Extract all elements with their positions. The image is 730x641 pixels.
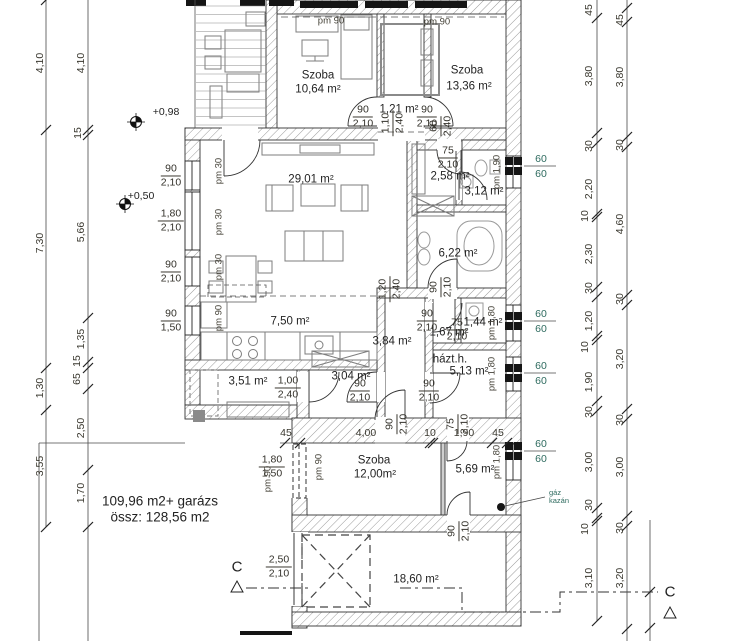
dimension-label: 30 [584, 282, 595, 294]
dimension-label: 10 [580, 523, 591, 535]
summary-area-line1: 109,96 m2+ garázs [102, 494, 218, 509]
dimension-label: 3,55 [35, 456, 46, 476]
dimension-label: 30 [615, 293, 626, 305]
room-label: 13,36 m² [446, 81, 491, 93]
opening-size-label: 1,802,10 [158, 208, 184, 233]
gas-boiler-label: gáz kazán [549, 489, 569, 506]
opening-size-label: 901,50 [161, 308, 181, 333]
opening-size-label: 1,202,40 [377, 276, 402, 302]
dimension-label: 3,80 [584, 66, 595, 86]
dimension-label: 1,30 [35, 378, 46, 398]
parapet-height-label: pm 1,80 [487, 357, 497, 391]
dimension-label: 3,20 [615, 349, 626, 369]
dimension-label: 65 [72, 373, 83, 385]
opening-size-label: 1,002,40 [275, 375, 301, 400]
dimension-label: 10 [580, 210, 591, 222]
dimension-label: 1,20 [584, 311, 595, 331]
parapet-height-label: pm 90 [214, 305, 224, 331]
dimension-label: 30 [584, 140, 595, 152]
opening-size-label: 2,502,10 [266, 554, 292, 579]
dimension-label: 45 [492, 428, 504, 439]
dimension-label: 3,80 [615, 67, 626, 87]
parapet-height-label: pm 30 [214, 158, 224, 184]
dimension-label: 4,60 [615, 214, 626, 234]
opening-size-label: 902,10 [428, 277, 453, 297]
parapet-height-label: pm 90 [424, 17, 450, 27]
column-size-label: 60 [535, 376, 547, 387]
dimension-label: 30 [584, 406, 595, 418]
dimension-label: 3,10 [584, 568, 595, 588]
dimension-label: 2,20 [584, 179, 595, 199]
dimension-label: 3,20 [615, 568, 626, 588]
dimension-label: 45 [280, 428, 292, 439]
opening-size-label: 902,10 [417, 308, 437, 333]
opening-size-label: 1,801,50 [259, 454, 285, 479]
dimension-label: 4,00 [356, 428, 376, 439]
room-label: 2,58 m² [431, 171, 470, 183]
room-label: Szoba [451, 65, 484, 77]
parapet-height-label: pm 1,80 [487, 306, 497, 340]
dimension-label: 1,90 [584, 372, 595, 392]
section-marker-letter-left: C [232, 559, 243, 576]
column-size-label: 60 [535, 324, 547, 335]
opening-size-label: 902,10 [446, 521, 471, 541]
column-size-label: 60 [535, 154, 547, 165]
opening-size-label: 752,10 [438, 145, 458, 170]
parapet-height-label: pm 30 [214, 254, 224, 280]
room-label: 12,00m² [354, 469, 396, 481]
room-label: 5,13 m² [450, 366, 489, 378]
dimension-label: 45 [615, 14, 626, 26]
dimension-label: 2,30 [584, 244, 595, 264]
dimension-label: 10 [424, 428, 436, 439]
dimension-label: 45 [584, 4, 595, 16]
summary-area-line2: össz: 128,56 m2 [110, 510, 209, 525]
room-label: Szoba [302, 70, 335, 82]
column-size-label: 60 [535, 439, 547, 450]
opening-size-label: 902,10 [419, 378, 439, 403]
room-label: 6,22 m² [439, 248, 478, 260]
dimension-label: 30 [615, 522, 626, 534]
opening-size-label: 902,10 [353, 104, 373, 129]
dimension-label: 1,70 [76, 483, 87, 503]
parapet-height-label: pm 90 [314, 454, 324, 480]
level-label: +0,50 [128, 191, 155, 202]
dimension-label: 5,66 [76, 222, 87, 242]
column-size-label: 60 [535, 169, 547, 180]
room-label: 10,64 m² [295, 84, 340, 96]
dimension-label: 4,10 [76, 53, 87, 73]
opening-size-label: 902,10 [384, 414, 409, 434]
column-size-label: 60 [535, 309, 547, 320]
opening-size-label: 902,10 [161, 163, 181, 188]
room-label: Szoba [358, 455, 391, 467]
dimension-label: 7,30 [35, 233, 46, 253]
floor-plan: 109,96 m2+ garázs össz: 128,56 m2 C C gá… [0, 0, 730, 641]
column-size-label: 60 [535, 361, 547, 372]
opening-size-label: 902,10 [350, 378, 370, 403]
opening-size-label: 752,10 [447, 317, 467, 342]
room-label: 29,01 m² [288, 174, 333, 186]
room-label: 3,84 m² [373, 336, 412, 348]
opening-size-label: 752,10 [445, 414, 470, 434]
dimension-label: 15 [73, 127, 84, 139]
room-label: 18,60 m² [393, 574, 438, 586]
level-label: +0,98 [153, 107, 180, 118]
room-label: házt.h. [433, 354, 468, 366]
dimension-label: 2,50 [76, 418, 87, 438]
dimension-label: 15 [72, 355, 83, 367]
plan-labels: 109,96 m2+ garázs össz: 128,56 m2 C C gá… [0, 0, 730, 641]
dimension-label: 1,35 [76, 329, 87, 349]
dimension-label: 3,00 [615, 457, 626, 477]
section-marker-letter-right: C [665, 584, 676, 601]
parapet-height-label: pm 1,90 [492, 155, 502, 189]
parapet-height-label: pm 90 [318, 16, 344, 26]
dimension-label: 10 [580, 341, 591, 353]
room-label: 7,50 m² [271, 316, 310, 328]
dimension-label: 30 [584, 499, 595, 511]
room-label: 3,51 m² [229, 376, 268, 388]
dimension-label: 3,00 [584, 452, 595, 472]
opening-size-label: 902,10 [161, 259, 181, 284]
dimension-label: 30 [615, 139, 626, 151]
room-label: 5,69 m² [456, 464, 495, 476]
dimension-label: 30 [615, 414, 626, 426]
parapet-height-label: pm 30 [214, 209, 224, 235]
opening-size-label: 602,40 [428, 116, 453, 136]
column-size-label: 60 [535, 454, 547, 465]
dimension-label: 4,10 [35, 53, 46, 73]
parapet-height-label: pm 1,80 [492, 445, 502, 479]
opening-size-label: 1,102,40 [380, 110, 405, 136]
